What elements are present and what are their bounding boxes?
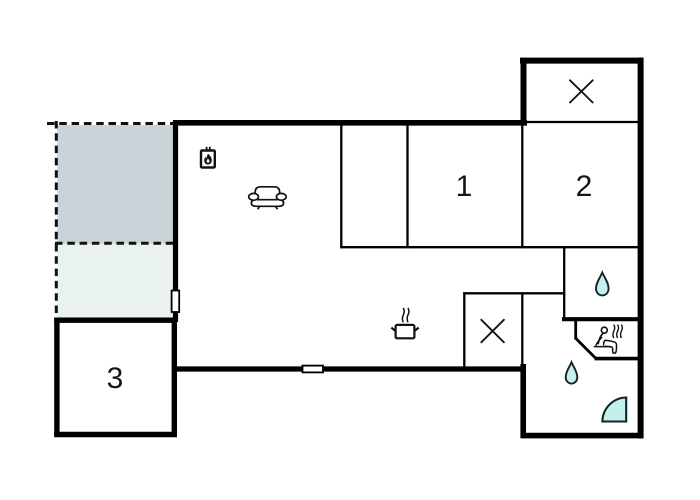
svg-text:2: 2 xyxy=(576,170,593,203)
svg-text:3: 3 xyxy=(107,362,124,395)
svg-text:1: 1 xyxy=(456,170,473,203)
